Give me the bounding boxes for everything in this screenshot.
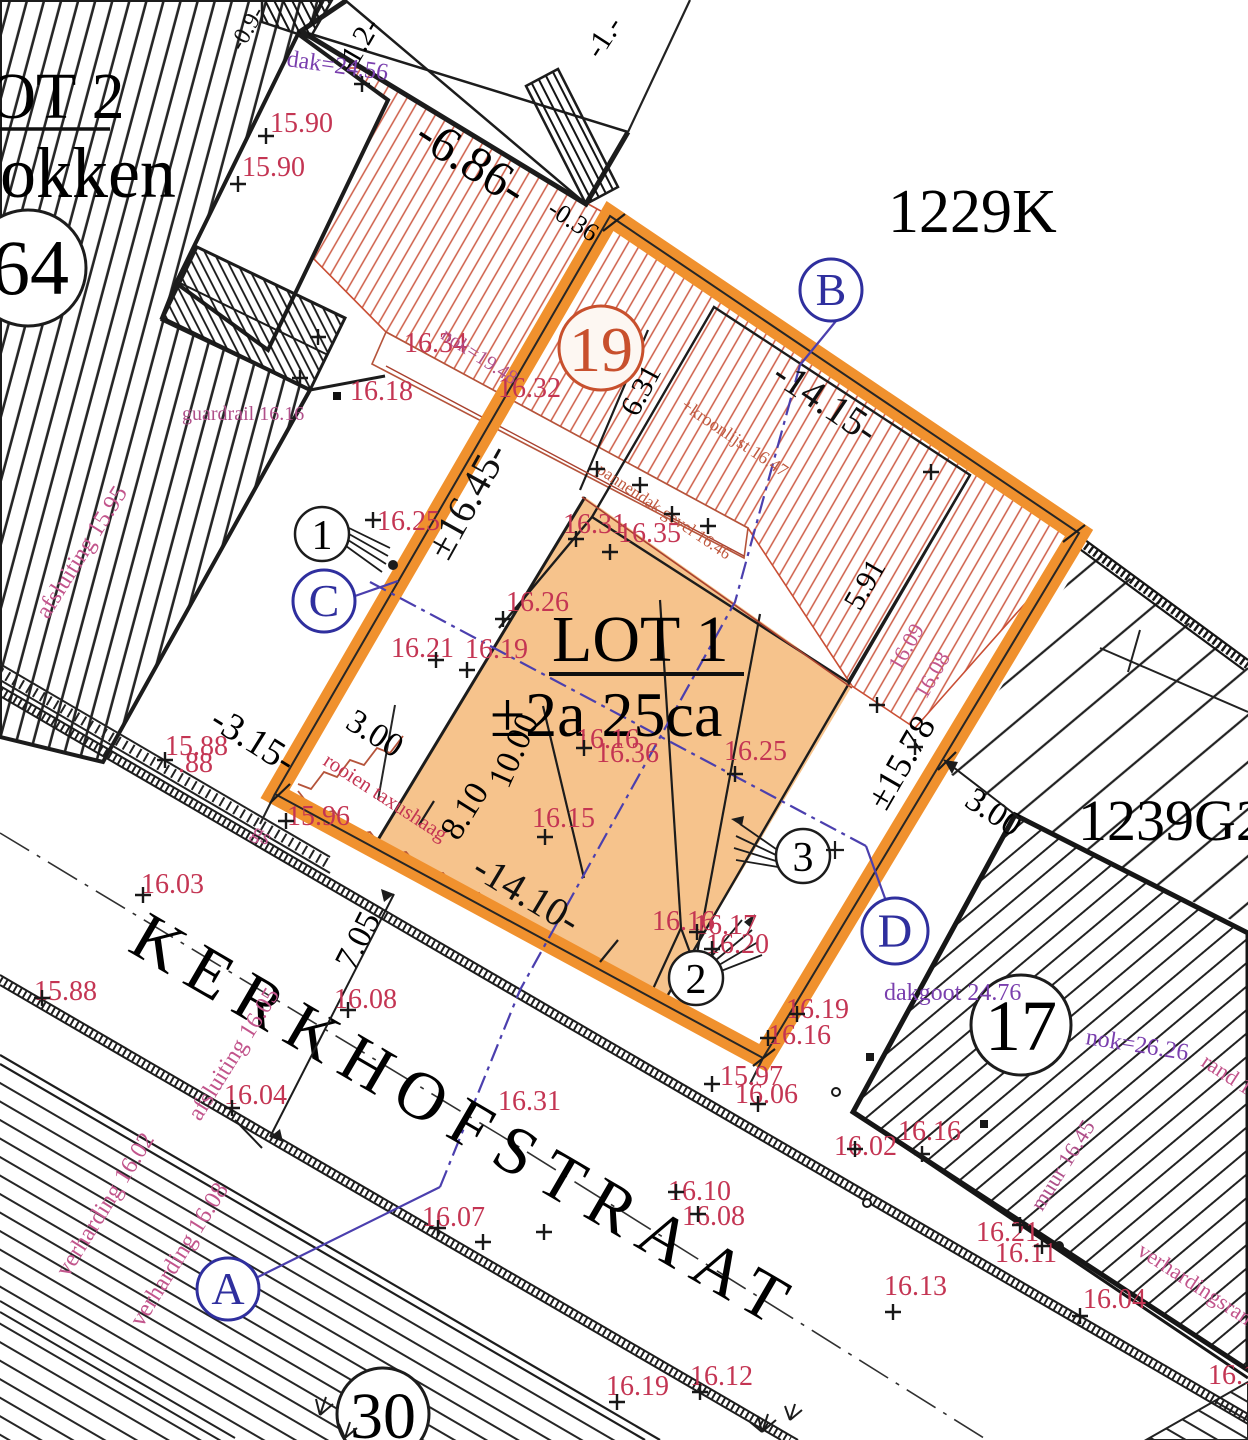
svg-text:16.04: 16.04 — [1083, 1284, 1146, 1315]
svg-text:16.08: 16.08 — [682, 1201, 745, 1232]
svg-text:1: 1 — [312, 513, 333, 559]
svg-text:dakgoot 24.76: dakgoot 24.76 — [884, 980, 1021, 1006]
svg-text:16.25: 16.25 — [377, 506, 440, 537]
svg-text:19: 19 — [569, 314, 633, 385]
svg-text:16.36: 16.36 — [596, 738, 659, 769]
svg-text:16.16: 16.16 — [768, 1020, 831, 1051]
svg-text:15.90: 15.90 — [270, 108, 333, 139]
svg-text:15.88: 15.88 — [34, 976, 97, 1007]
svg-text:16.16: 16.16 — [898, 1116, 961, 1147]
svg-text:guardrail 16.16: guardrail 16.16 — [182, 403, 304, 425]
svg-text:30: 30 — [350, 1380, 416, 1440]
svg-text:15.96: 15.96 — [287, 801, 350, 832]
svg-text:LOT 2: LOT 2 — [0, 60, 125, 133]
svg-text:16.20: 16.20 — [706, 929, 769, 960]
svg-text:16.15: 16.15 — [532, 803, 595, 834]
svg-text:1239G2: 1239G2 — [1078, 788, 1248, 853]
svg-text:16.31: 16.31 — [498, 1086, 561, 1117]
svg-text:16.25: 16.25 — [724, 736, 787, 767]
svg-text:A: A — [211, 1263, 244, 1314]
svg-text:D: D — [878, 905, 913, 958]
svg-text:16.16: 16.16 — [652, 906, 715, 937]
svg-text:64: 64 — [0, 224, 69, 311]
svg-text:16.06: 16.06 — [735, 1079, 798, 1110]
svg-text:.88: .88 — [178, 748, 213, 779]
svg-text:B: B — [816, 264, 847, 315]
svg-text:16.11: 16.11 — [995, 1238, 1057, 1269]
svg-text:16.19: 16.19 — [465, 634, 528, 665]
svg-text:16.02: 16.02 — [834, 1131, 897, 1162]
svg-text:16.16: 16.16 — [1208, 1360, 1248, 1391]
svg-text:15.90: 15.90 — [242, 152, 305, 183]
svg-text:3: 3 — [793, 835, 814, 881]
svg-text:16.21: 16.21 — [391, 633, 454, 664]
svg-text:LOT 1: LOT 1 — [552, 603, 729, 676]
svg-text:16.31: 16.31 — [563, 509, 626, 540]
svg-text:2: 2 — [686, 957, 707, 1003]
svg-text:16.04: 16.04 — [224, 1080, 287, 1111]
svg-text:C: C — [309, 575, 340, 626]
svg-text:16.26: 16.26 — [506, 587, 569, 618]
svg-text:16.19: 16.19 — [606, 1371, 669, 1402]
svg-text:1229K: 1229K — [888, 178, 1057, 246]
svg-text:16.13: 16.13 — [884, 1271, 947, 1302]
svg-text:rokken: rokken — [0, 133, 176, 213]
svg-text:16.18: 16.18 — [350, 376, 413, 407]
